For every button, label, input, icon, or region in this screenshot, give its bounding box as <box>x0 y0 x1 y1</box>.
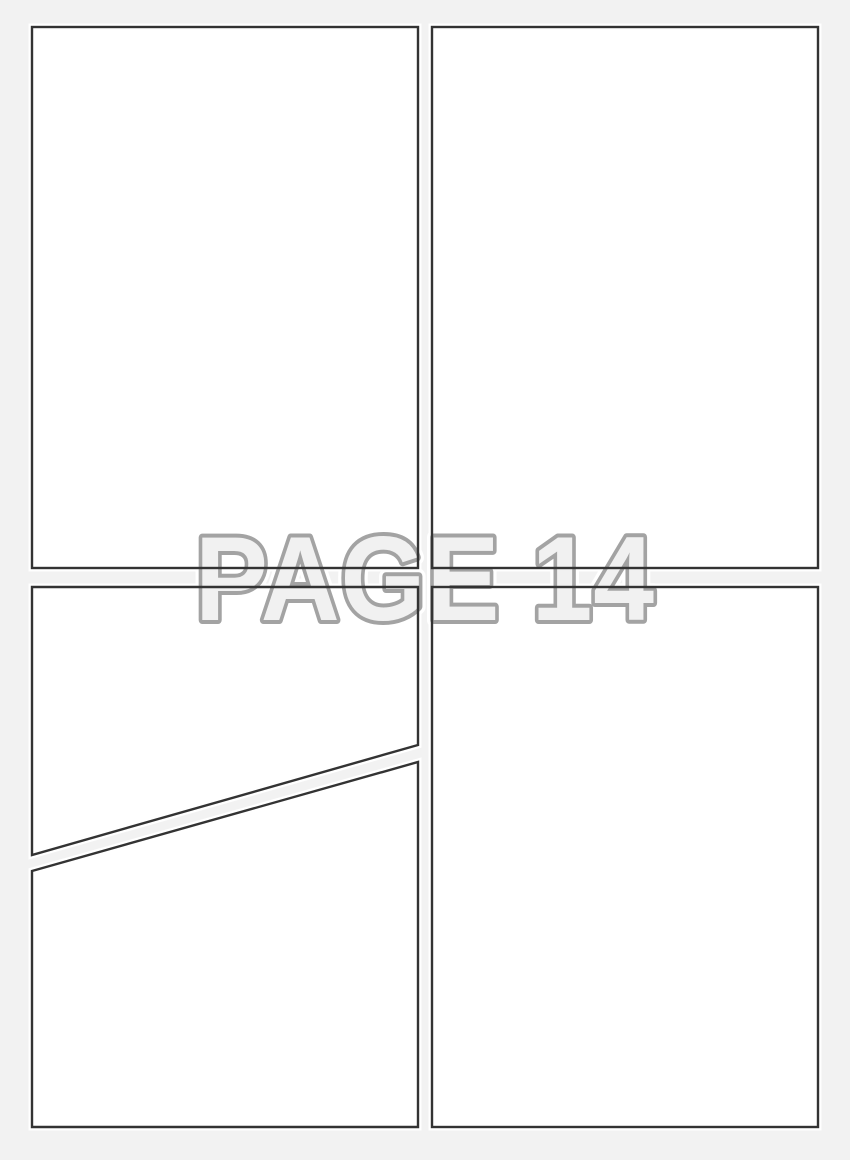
panel-top-right-fill <box>432 27 818 568</box>
comic-page: PAGE 14 PAGE 14 <box>0 0 850 1160</box>
watermark-text: PAGE 14 <box>195 512 655 646</box>
comic-page-template: PAGE 14 PAGE 14 <box>0 0 850 1160</box>
panel-top-left-fill <box>32 27 418 568</box>
page-watermark: PAGE 14 PAGE 14 <box>195 512 655 646</box>
panel-bottom-right-fill <box>432 587 818 1127</box>
